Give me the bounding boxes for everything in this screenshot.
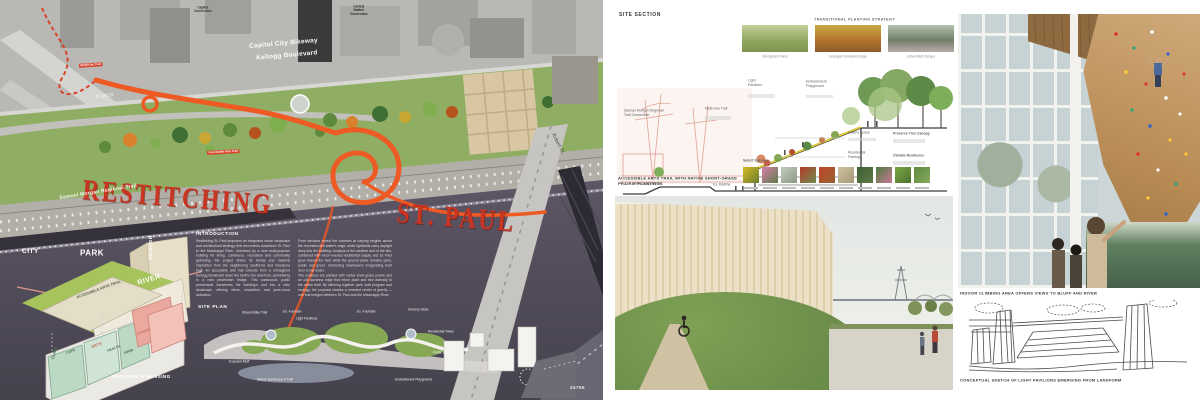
site-section-heading: SITE SECTION bbox=[619, 12, 661, 18]
photo-urban-bluff-canopy bbox=[888, 25, 954, 52]
rendering-arts-trail bbox=[615, 196, 953, 390]
presentation-board: RESTITCHING ST. PAUL bbox=[0, 0, 1200, 400]
species-thumb-6 bbox=[838, 167, 854, 183]
photo-shortgrass-prairie bbox=[742, 25, 808, 52]
species-thumb-7 bbox=[857, 167, 873, 183]
program-massing-axon bbox=[12, 215, 202, 400]
climber-figure bbox=[1144, 54, 1174, 94]
species-thumb-1 bbox=[743, 167, 759, 183]
pedestrian-figures bbox=[915, 322, 945, 362]
species-thumb-9 bbox=[895, 167, 911, 183]
species-thumb-8 bbox=[876, 167, 892, 183]
preserved-trees bbox=[842, 69, 953, 128]
species-thumb-2 bbox=[762, 167, 778, 183]
wheelchair-figure bbox=[677, 314, 693, 338]
site-plan-drawing bbox=[196, 303, 576, 398]
left-board: RESTITCHING ST. PAUL bbox=[0, 0, 603, 400]
conceptual-sketch bbox=[967, 300, 1189, 374]
slope-planting bbox=[757, 131, 840, 167]
viewer-figures bbox=[1038, 204, 1128, 288]
species-thumb-5 bbox=[819, 167, 835, 183]
right-board: SITE SECTION TRANSITIONAL PLANTING STRAT… bbox=[615, 0, 1200, 400]
photo-emergent-shrubland bbox=[815, 25, 881, 52]
caption-climbing: INDOOR CLIMBING AREA OFFERS VIEWS TO BLU… bbox=[960, 291, 1195, 296]
species-row bbox=[743, 167, 943, 189]
rendering-climbing bbox=[958, 14, 1200, 288]
species-thumb-10 bbox=[914, 167, 930, 183]
planting-strategy-heading: TRANSITIONAL PLANTING STRATEGY bbox=[814, 17, 895, 22]
caption-sketch: CONCEPTUAL SKETCH OF LIGHT PAVILIONS EME… bbox=[960, 378, 1200, 383]
species-thumb-4 bbox=[800, 167, 816, 183]
species-thumb-3 bbox=[781, 167, 797, 183]
